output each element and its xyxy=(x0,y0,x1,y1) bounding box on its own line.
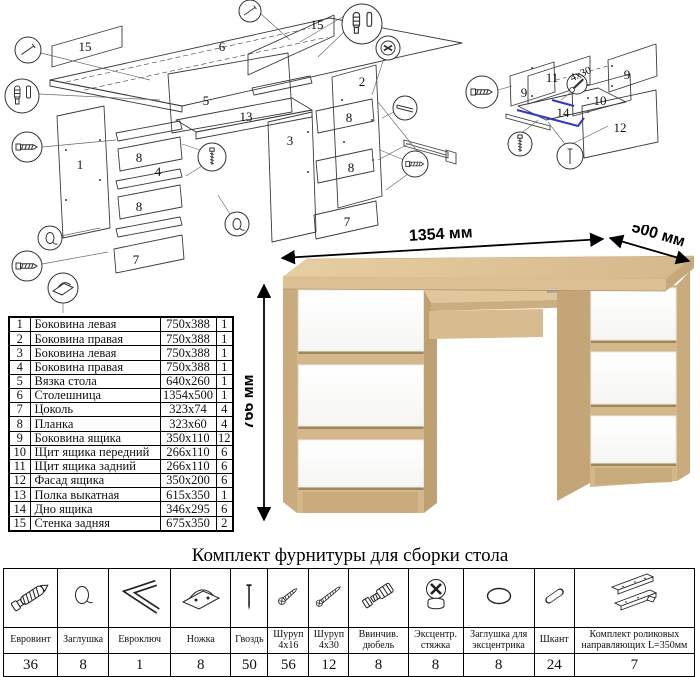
part-num: 9 xyxy=(9,431,30,445)
desk-render: 1354 мм 500 мм 766 мм xyxy=(245,225,700,545)
table-row: 10Щит ящика передний266x1106 xyxy=(9,445,233,459)
hardware-qty: 36 xyxy=(4,654,58,677)
table-row: 4Боковина правая750x3881 xyxy=(9,360,233,374)
hardware-icon-cell xyxy=(408,569,463,628)
part-size: 750x388 xyxy=(160,317,216,332)
hexkey-icon xyxy=(115,570,165,622)
part-num: 5 xyxy=(9,374,30,388)
part-size: 323x60 xyxy=(160,417,216,431)
hardware-icon-cell xyxy=(574,569,694,628)
hardware-icon-cell xyxy=(349,569,408,628)
part-size: 750x388 xyxy=(160,360,216,374)
part-name: Щит ящика задний xyxy=(30,459,160,473)
part-qty: 1 xyxy=(216,332,233,346)
part-label: 8 xyxy=(136,150,143,165)
screw-4x16-icon xyxy=(268,570,308,622)
part-size: 350x200 xyxy=(160,474,216,488)
hardware-name: Шкант xyxy=(534,628,574,654)
table-row: 3Боковина левая750x3881 xyxy=(9,346,233,360)
part-size: 615x350 xyxy=(160,488,216,502)
table-row: 12Фасад ящика350x2006 xyxy=(9,474,233,488)
part-label: 13 xyxy=(240,109,253,124)
hardware-icon-cell xyxy=(463,569,534,628)
part-num: 14 xyxy=(9,502,30,516)
drawer-front xyxy=(591,352,676,404)
parts-table: 1Боковина левая750x3881 2Боковина правая… xyxy=(8,316,234,532)
nail-icon xyxy=(231,570,267,622)
hardware-icon-cell xyxy=(231,569,268,628)
part-qty: 2 xyxy=(216,516,233,531)
hardware-qty: 12 xyxy=(309,654,349,677)
hardware-qty: 8 xyxy=(349,654,408,677)
part-label: 11 xyxy=(546,70,559,85)
part-qty: 6 xyxy=(216,445,233,459)
right-side-panel xyxy=(677,271,690,481)
hardware-qty: 56 xyxy=(268,654,309,677)
hardware-name: Шуруп 4x16 xyxy=(268,628,309,654)
part-num: 7 xyxy=(9,403,30,417)
part-qty: 4 xyxy=(216,417,233,431)
part-num: 13 xyxy=(9,488,30,502)
euroscrew-icon xyxy=(16,144,37,150)
euroscrew-icon xyxy=(16,263,37,269)
part-name: Боковина правая xyxy=(30,332,160,346)
part-size: 750x388 xyxy=(160,332,216,346)
table-row: 2Боковина правая750x3881 xyxy=(9,332,233,346)
part-qty: 12 xyxy=(216,431,233,445)
table-row: 13Полка выкатная615x3501 xyxy=(9,488,233,502)
hardware-icon-cell xyxy=(534,569,574,628)
part-size: 1354x500 xyxy=(160,388,216,402)
hardware-qty-row: 36 8 1 8 50 56 12 8 8 8 24 7 xyxy=(4,654,695,677)
desk-body xyxy=(283,256,694,513)
part-label: 9 xyxy=(521,85,528,100)
part-label: 6 xyxy=(219,39,226,54)
euroscrew-icon xyxy=(471,89,492,95)
hardware-table: Евровинт Заглушка Евроключ Ножка Гвоздь … xyxy=(3,568,695,677)
part-size: 346x295 xyxy=(160,502,216,516)
part-size: 750x388 xyxy=(160,346,216,360)
hardware-name: Ножка xyxy=(171,628,231,654)
part-num: 1 xyxy=(9,317,30,332)
part-label: 8 xyxy=(136,199,143,214)
part-qty: 1 xyxy=(216,346,233,360)
part-qty: 6 xyxy=(216,502,233,516)
hardware-name: Ввинчив. дюбель xyxy=(349,628,408,654)
part-name: Щит ящика передний xyxy=(30,445,160,459)
part-name: Вязка стола xyxy=(30,374,160,388)
table-row: 7Цоколь323x744 xyxy=(9,403,233,417)
hardware-icons-row xyxy=(4,569,695,628)
table-row: 1Боковина левая750x3881 xyxy=(9,317,233,332)
part-label: 9 xyxy=(624,67,631,82)
table-row: 14Дно ящика346x2956 xyxy=(9,502,233,516)
hardware-name: Заглушка xyxy=(58,628,109,654)
desktop-front-edge xyxy=(283,277,666,291)
part-num: 12 xyxy=(9,474,30,488)
drawer-assembly-diagram: 11 9 9 10 14 12 4x30 xyxy=(460,0,700,235)
table-row: 5Вязка стола640x2601 xyxy=(9,374,233,388)
hardware-icon-cell xyxy=(268,569,309,628)
part-qty: 1 xyxy=(216,317,233,332)
left-plinth xyxy=(303,492,418,513)
hardware-kit-title: Комплект фурнитуры для сборки стола xyxy=(0,545,700,567)
eccentric-cam-icon xyxy=(381,41,395,55)
height-dimension-label: 766 мм xyxy=(245,375,257,430)
part-num: 15 xyxy=(9,516,30,531)
part-name: Полка выкатная xyxy=(30,488,160,502)
part-num: 6 xyxy=(9,388,30,402)
left-side-panel xyxy=(283,288,297,513)
part-name: Столешница xyxy=(30,388,160,402)
right-plinth xyxy=(595,468,672,485)
table-row: 11Щит ящика задний266x1106 xyxy=(9,459,233,473)
part-num: 10 xyxy=(9,445,30,459)
hardware-qty: 24 xyxy=(534,654,574,677)
hardware-qty: 8 xyxy=(171,654,231,677)
part-size: 266x110 xyxy=(160,459,216,473)
drawer-front xyxy=(299,365,424,426)
table-row: 15Стенка задняя675x3502 xyxy=(9,516,233,531)
hardware-name: Евроключ xyxy=(109,628,171,654)
assembly-instruction-sheet: 15 6 15 5 13 1 8 4 8 7 2 3 8 8 7 xyxy=(0,0,700,677)
screw-icon xyxy=(406,161,424,166)
eccentric-cap-icon xyxy=(474,570,524,622)
part-qty: 6 xyxy=(216,459,233,473)
part-name: Фасад ящика xyxy=(30,474,160,488)
part-size: 640x260 xyxy=(160,374,216,388)
screw-dowel-icon xyxy=(353,570,403,622)
part-label: 14 xyxy=(557,105,571,120)
table-row: 8Планка323x604 xyxy=(9,417,233,431)
part-name: Боковина левая xyxy=(30,346,160,360)
dowel-icon xyxy=(535,570,574,622)
hardware-icon-cell xyxy=(58,569,109,628)
part-label: 12 xyxy=(614,120,627,135)
part-qty: 4 xyxy=(216,403,233,417)
hardware-qty: 8 xyxy=(58,654,109,677)
width-dimension-label: 1354 мм xyxy=(408,225,473,245)
part-name: Планка xyxy=(30,417,160,431)
hardware-name: Евровинт xyxy=(4,628,58,654)
hardware-qty: 8 xyxy=(463,654,534,677)
part-num: 11 xyxy=(9,459,30,473)
hardware-name: Шуруп 4x30 xyxy=(309,628,349,654)
part-name: Боковина левая xyxy=(30,317,160,332)
part-num: 3 xyxy=(9,346,30,360)
part-size: 266x110 xyxy=(160,445,216,459)
part-label: 5 xyxy=(203,93,210,108)
drawer-front xyxy=(299,440,424,487)
part-name: Цоколь xyxy=(30,403,160,417)
part-label: 15 xyxy=(79,39,92,54)
part-label: 8 xyxy=(348,160,355,175)
hardware-qty: 1 xyxy=(109,654,171,677)
part-qty: 1 xyxy=(216,488,233,502)
desktop-top xyxy=(283,256,694,279)
drawer-front xyxy=(591,416,676,463)
part-num: 2 xyxy=(9,332,30,346)
hardware-name: Заглушка для эксцентрика xyxy=(463,628,534,654)
back-rail xyxy=(429,309,543,339)
part-qty: 1 xyxy=(216,374,233,388)
hardware-icon-cell xyxy=(4,569,58,628)
part-label: 10 xyxy=(594,93,607,108)
hardware-icon-cell xyxy=(171,569,231,628)
part-name: Боковина ящика xyxy=(30,431,160,445)
euroscrew-icon xyxy=(6,570,56,622)
eccentric-cam-icon xyxy=(411,570,461,622)
part-label: 2 xyxy=(359,74,366,89)
drawer-rails-icon xyxy=(578,570,690,622)
part-num: 4 xyxy=(9,360,30,374)
part-name: Стенка задняя xyxy=(30,516,160,531)
hardware-qty: 50 xyxy=(231,654,268,677)
part-label: 1 xyxy=(77,157,84,172)
hardware-qty: 7 xyxy=(574,654,694,677)
hardware-qty: 8 xyxy=(408,654,463,677)
part-size: 323x74 xyxy=(160,403,216,417)
part-qty: 6 xyxy=(216,474,233,488)
part-label: 8 xyxy=(346,110,353,125)
part-label: 15 xyxy=(311,17,324,32)
part-name: Дно ящика xyxy=(30,502,160,516)
hardware-name: Гвоздь xyxy=(231,628,268,654)
part-label: 4 xyxy=(155,164,162,179)
hardware-names-row: Евровинт Заглушка Евроключ Ножка Гвоздь … xyxy=(4,628,695,654)
part-num: 8 xyxy=(9,417,30,431)
part-label: 3 xyxy=(287,133,294,148)
part-qty: 1 xyxy=(216,360,233,374)
drawer-front xyxy=(299,290,424,351)
table-row: 9Боковина ящика350x11012 xyxy=(9,431,233,445)
part-label: 7 xyxy=(133,252,140,267)
hardware-name: Эксцентр. стяжка xyxy=(408,628,463,654)
part-qty: 1 xyxy=(216,388,233,402)
part-size: 350x110 xyxy=(160,431,216,445)
part-name: Боковина правая xyxy=(30,360,160,374)
table-row: 6Столешница1354x5001 xyxy=(9,388,233,402)
drawer-front xyxy=(591,288,676,340)
screw-4x30-icon xyxy=(309,570,348,622)
right-inner-side xyxy=(557,284,590,501)
foot-icon xyxy=(176,570,226,622)
cap-icon xyxy=(58,570,108,622)
hardware-icon-cell xyxy=(309,569,349,628)
hardware-name: Комплект роликовых направляющих L=350мм xyxy=(574,628,694,654)
part-size: 675x350 xyxy=(160,516,216,531)
hardware-icon-cell xyxy=(109,569,171,628)
